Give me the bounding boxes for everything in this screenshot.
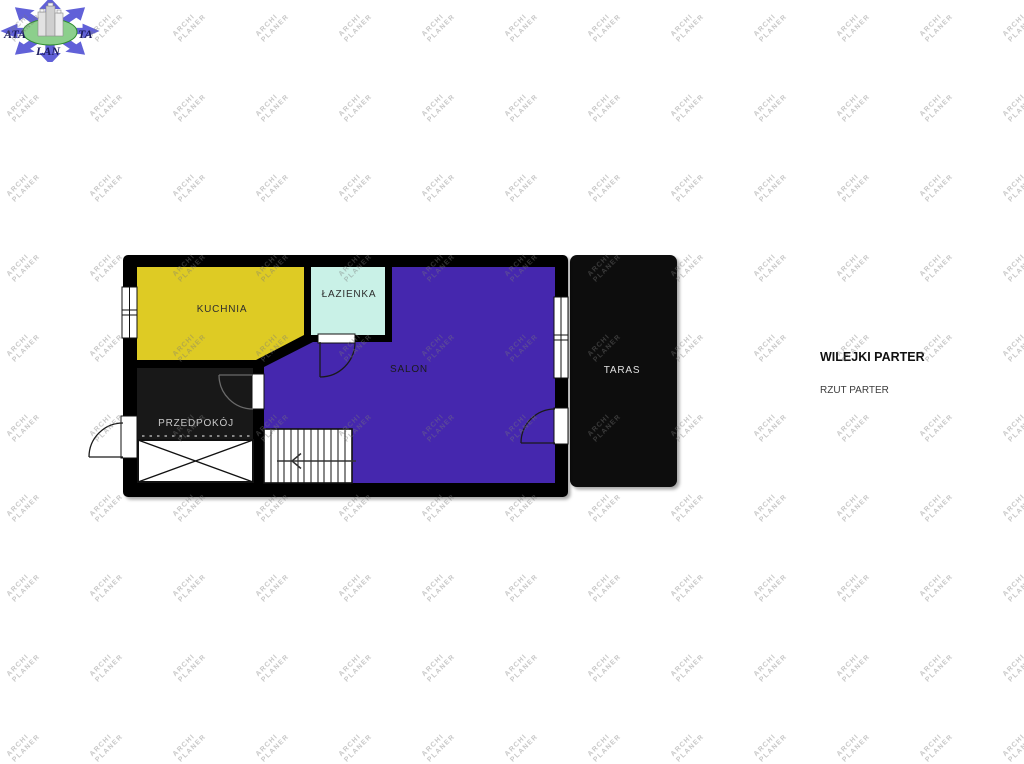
plan-title: WILEJKI PARTER (820, 350, 925, 364)
void-crossed-box (138, 440, 253, 482)
hallway-door-opening (252, 374, 264, 409)
logo-text-bottom: LAN (35, 44, 61, 58)
room-label-kuchnia: KUCHNIA (197, 304, 248, 315)
room-lazienka (311, 267, 385, 335)
logo-text-left: ATA (3, 27, 26, 41)
logo-text-right: TA (78, 27, 93, 41)
entry-door-opening (121, 416, 137, 458)
terrace-door-opening (554, 408, 568, 444)
kitchen-window (122, 287, 137, 338)
title-block: WILEJKI PARTER RZUT PARTER (820, 350, 925, 396)
room-label-salon: SALON (390, 364, 428, 375)
room-label-przedpokoj: PRZEDPOKÓJ (158, 416, 234, 429)
plan-subtitle: RZUT PARTER (820, 385, 925, 396)
room-label-taras: TARAS (604, 365, 641, 376)
room-label-lazienka: ŁAZIENKA (322, 289, 377, 300)
stairs (264, 429, 356, 483)
company-logo: ATA TA LAN (0, 0, 108, 62)
salon-window (554, 297, 568, 378)
entry-door-swing (89, 423, 123, 457)
bathroom-door-threshold (318, 334, 355, 343)
